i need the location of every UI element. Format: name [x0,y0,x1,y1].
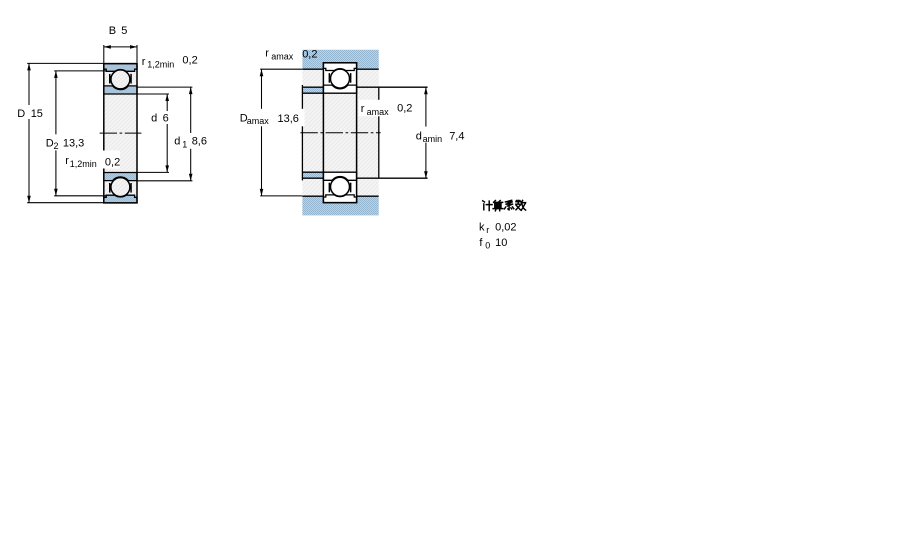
svg-text:10: 10 [495,237,507,249]
svg-text:r: r [486,225,489,235]
svg-text:amax: amax [271,51,294,61]
svg-text:d: d [416,130,422,142]
svg-text:2: 2 [54,141,59,151]
svg-text:5: 5 [121,25,127,37]
svg-text:k: k [479,221,485,233]
svg-text:amax: amax [247,116,270,126]
svg-text:15: 15 [31,108,43,120]
svg-text:d: d [151,113,157,125]
svg-text:0,2: 0,2 [182,55,197,67]
svg-text:0,2: 0,2 [105,156,120,168]
svg-text:r: r [65,155,69,167]
svg-text:0: 0 [485,241,490,251]
svg-text:d: d [174,136,180,148]
svg-text:amin: amin [423,134,443,144]
svg-text:f: f [479,237,483,249]
svg-text:r: r [142,56,146,68]
svg-text:r: r [265,48,269,60]
svg-text:1,2min: 1,2min [147,60,174,70]
svg-text:13,6: 13,6 [278,113,299,125]
svg-text:0,2: 0,2 [397,102,412,114]
svg-text:1: 1 [182,139,187,149]
svg-text:D: D [17,108,25,120]
svg-text:amax: amax [367,107,390,117]
svg-text:1,2min: 1,2min [70,159,97,169]
svg-text:B: B [109,25,116,37]
svg-text:8,6: 8,6 [192,136,207,148]
svg-text:r: r [361,103,365,115]
svg-text:7,4: 7,4 [449,130,464,142]
svg-text:13,3: 13,3 [63,137,84,149]
svg-text:6: 6 [163,113,169,125]
svg-text:0,2: 0,2 [302,49,317,61]
svg-text:0,02: 0,02 [495,221,516,233]
